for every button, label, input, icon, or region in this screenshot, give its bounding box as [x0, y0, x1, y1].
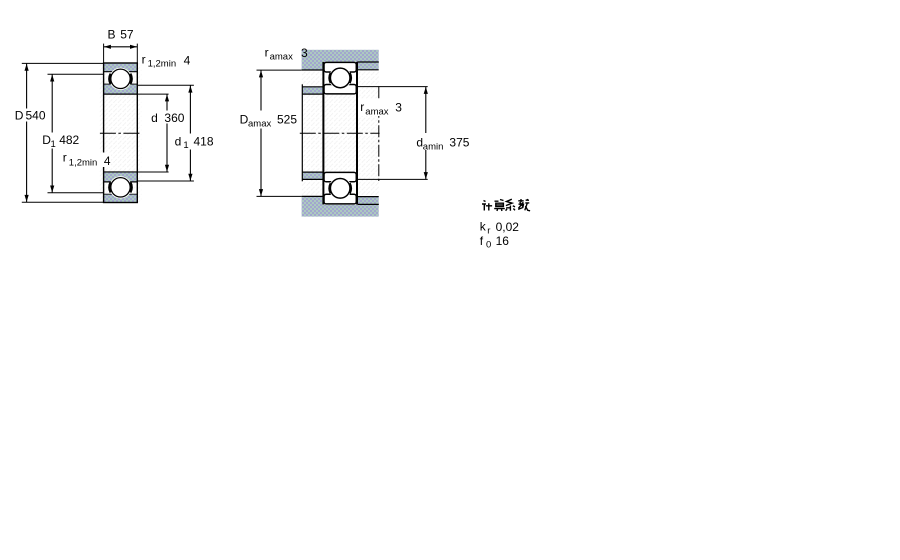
svg-text:525: 525: [277, 112, 297, 126]
svg-text:3: 3: [395, 101, 402, 115]
svg-text:16: 16: [496, 234, 510, 248]
svg-text:4: 4: [184, 54, 191, 68]
svg-text:amax: amax: [270, 52, 293, 63]
svg-text:482: 482: [59, 133, 79, 147]
svg-text:4: 4: [104, 154, 111, 168]
svg-text:540: 540: [26, 108, 46, 122]
svg-text:r: r: [265, 46, 269, 60]
svg-text:amin: amin: [423, 142, 444, 153]
svg-text:0,02: 0,02: [496, 220, 520, 234]
svg-text:D: D: [15, 108, 24, 122]
svg-text:360: 360: [164, 111, 184, 125]
svg-text:d: d: [151, 111, 158, 125]
svg-text:1: 1: [51, 139, 56, 150]
svg-text:r: r: [63, 150, 67, 164]
svg-text:amax: amax: [365, 106, 388, 117]
svg-text:418: 418: [194, 134, 214, 148]
svg-text:amax: amax: [248, 119, 271, 130]
svg-text:r: r: [142, 53, 146, 67]
svg-text:0: 0: [486, 240, 491, 251]
svg-text:57: 57: [120, 27, 134, 41]
svg-text:3: 3: [301, 46, 308, 60]
svg-text:B: B: [108, 27, 116, 41]
svg-text:r: r: [487, 225, 490, 236]
svg-text:1: 1: [183, 140, 188, 151]
svg-text:d: d: [175, 134, 182, 148]
svg-text:1,2min: 1,2min: [148, 59, 177, 70]
svg-text:1,2min: 1,2min: [69, 157, 98, 168]
svg-text:375: 375: [449, 135, 469, 149]
svg-text:r: r: [360, 100, 364, 114]
svg-text:k: k: [480, 220, 487, 234]
